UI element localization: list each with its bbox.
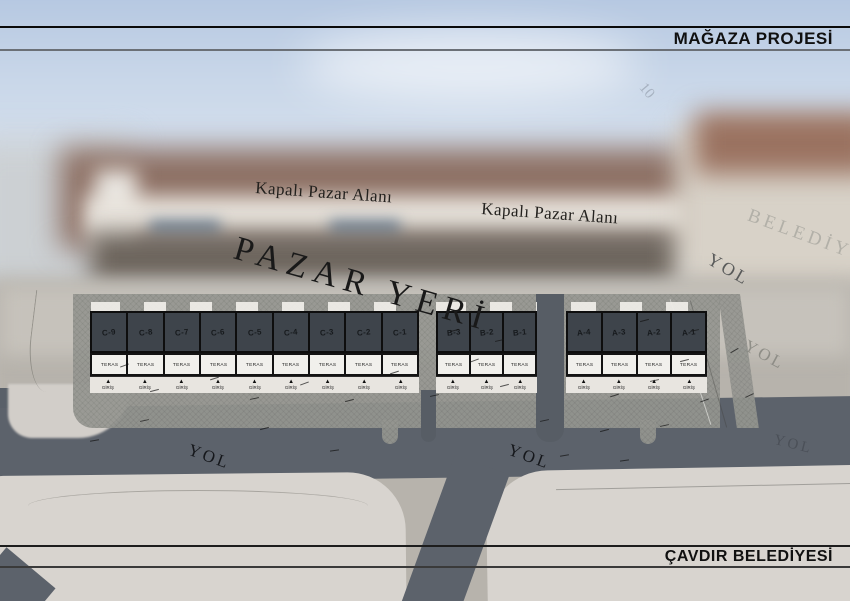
entrance-cell: ▲GİRİŞ bbox=[163, 377, 200, 393]
entrance-cell: ▲GİRİŞ bbox=[383, 377, 420, 393]
entrance-cell: ▲GİRİŞ bbox=[470, 377, 504, 393]
shop-unit-c-7: C-7 bbox=[163, 311, 201, 353]
terrace-cell: TERAS bbox=[126, 353, 164, 376]
title-rule-top bbox=[0, 26, 850, 28]
entrance-arrow-icon: ▲ bbox=[450, 379, 456, 385]
terrace-label: TERAS bbox=[282, 362, 300, 367]
entrance-arrow-icon: ▲ bbox=[252, 379, 258, 385]
terrace-row: TERASTERASTERAS bbox=[436, 353, 537, 376]
terrace-label: TERAS bbox=[445, 362, 463, 367]
entrance-strip: ▲GİRİŞ▲GİRİŞ▲GİRİŞ▲GİRİŞ bbox=[566, 376, 707, 393]
shop-unit-c-9: C-9 bbox=[90, 311, 128, 353]
terrace-cell: TERAS bbox=[235, 353, 273, 376]
shop-unit-label: C-5 bbox=[247, 327, 262, 337]
municipality-title: ÇAVDIR BELEDİYESİ bbox=[665, 548, 833, 566]
walkway-connector bbox=[421, 390, 436, 442]
terrace-cell: TERAS bbox=[436, 353, 471, 376]
entrance-label: GİRİŞ bbox=[285, 385, 297, 389]
entrance-arrow-icon: ▲ bbox=[105, 379, 111, 385]
entrance-label: GİRİŞ bbox=[212, 385, 224, 389]
roof-tabs bbox=[566, 302, 707, 311]
shop-unit-a-3: A-3 bbox=[601, 311, 638, 353]
terrace-cell: TERAS bbox=[601, 353, 638, 376]
shop-unit-c-8: C-8 bbox=[126, 311, 164, 353]
terrace-cell: TERAS bbox=[163, 353, 201, 376]
entrance-label: GİRİŞ bbox=[648, 385, 660, 389]
terrace-label: TERAS bbox=[576, 362, 594, 367]
entrance-cell: ▲GİRİŞ bbox=[601, 377, 636, 393]
shop-unit-label: C-6 bbox=[211, 327, 226, 337]
terrace-cell: TERAS bbox=[308, 353, 346, 376]
terrace-label: TERAS bbox=[173, 362, 191, 367]
entrance-label: GİRİŞ bbox=[514, 385, 526, 389]
terrace-cell: TERAS bbox=[344, 353, 382, 376]
entrance-strip: ▲GİRİŞ▲GİRİŞ▲GİRİŞ▲GİRİŞ▲GİRİŞ▲GİRİŞ▲GİR… bbox=[90, 376, 419, 393]
entrance-label: GİRİŞ bbox=[249, 385, 261, 389]
terrace-cell: TERAS bbox=[272, 353, 310, 376]
shop-unit-c-4: C-4 bbox=[272, 311, 310, 353]
terrace-cell: TERAS bbox=[670, 353, 707, 376]
site-plan-sheet: C-9C-8C-7C-6C-5C-4C-3C-2C-1 TERASTERASTE… bbox=[0, 0, 850, 601]
entrance-arrow-icon: ▲ bbox=[215, 379, 221, 385]
title-rule-bottom-2 bbox=[0, 566, 850, 568]
entrance-label: GİRİŞ bbox=[481, 385, 493, 389]
entrance-label: GİRİŞ bbox=[139, 385, 151, 389]
entrance-cell: ▲GİRİŞ bbox=[346, 377, 383, 393]
entrance-arrow-icon: ▲ bbox=[484, 379, 490, 385]
terrace-label: TERAS bbox=[318, 362, 336, 367]
entrance-cell: ▲GİRİŞ bbox=[200, 377, 237, 393]
entrance-arrow-icon: ▲ bbox=[178, 379, 184, 385]
shop-unit-c-2: C-2 bbox=[344, 311, 382, 353]
entrance-label: GİRİŞ bbox=[578, 385, 590, 389]
entrance-cell: ▲GİRİŞ bbox=[566, 377, 601, 393]
entrance-label: GİRİŞ bbox=[358, 385, 370, 389]
terrace-label: TERAS bbox=[355, 362, 373, 367]
shop-unit-label: C-1 bbox=[392, 327, 407, 337]
entrance-cell: ▲GİRİŞ bbox=[273, 377, 310, 393]
shop-unit-label: A-4 bbox=[577, 327, 592, 337]
shop-unit-a-1: A-1 bbox=[670, 311, 707, 353]
shop-block-c: C-9C-8C-7C-6C-5C-4C-3C-2C-1 TERASTERASTE… bbox=[90, 302, 419, 393]
terrace-row: TERASTERASTERASTERAS bbox=[566, 353, 707, 376]
entrance-cell: ▲GİRİŞ bbox=[127, 377, 164, 393]
entrance-cell: ▲GİRİŞ bbox=[236, 377, 273, 393]
shop-unit-label: A-2 bbox=[647, 327, 662, 337]
entrance-label: GİRİŞ bbox=[322, 385, 334, 389]
terrace-label: TERAS bbox=[209, 362, 227, 367]
entrance-cell: ▲GİRİŞ bbox=[90, 377, 127, 393]
entrance-arrow-icon: ▲ bbox=[325, 379, 331, 385]
entrance-arrow-icon: ▲ bbox=[686, 379, 692, 385]
unit-row: C-9C-8C-7C-6C-5C-4C-3C-2C-1 bbox=[90, 311, 419, 353]
entrance-cell: ▲GİRİŞ bbox=[309, 377, 346, 393]
terrace-label: TERAS bbox=[100, 362, 118, 367]
entrance-label: GİRİŞ bbox=[395, 385, 407, 389]
terrace-cell: TERAS bbox=[502, 353, 537, 376]
project-title: MAĞAZA PROJESİ bbox=[674, 29, 833, 49]
entrance-label: GİRİŞ bbox=[613, 385, 625, 389]
plaza-stub bbox=[382, 420, 398, 444]
terrace-row: TERASTERASTERASTERASTERASTERASTERASTERAS… bbox=[90, 353, 419, 376]
entrance-arrow-icon: ▲ bbox=[398, 379, 404, 385]
shop-unit-label: A-1 bbox=[681, 327, 696, 337]
entrance-arrow-icon: ▲ bbox=[581, 379, 587, 385]
entrance-strip: ▲GİRİŞ▲GİRİŞ▲GİRİŞ bbox=[436, 376, 537, 393]
entrance-label: GİRİŞ bbox=[175, 385, 187, 389]
entrance-cell: ▲GİRİŞ bbox=[436, 377, 470, 393]
terrace-cell: TERAS bbox=[566, 353, 603, 376]
terrace-label: TERAS bbox=[391, 362, 409, 367]
shop-unit-a-4: A-4 bbox=[566, 311, 603, 353]
entrance-arrow-icon: ▲ bbox=[361, 379, 367, 385]
terrace-label: TERAS bbox=[511, 362, 529, 367]
terrace-label: TERAS bbox=[680, 362, 698, 367]
cloud-photo bbox=[300, 30, 640, 100]
brick-right-photo bbox=[695, 112, 850, 174]
terrace-label: TERAS bbox=[246, 362, 264, 367]
entrance-arrow-icon: ▲ bbox=[142, 379, 148, 385]
shop-unit-label: C-9 bbox=[102, 327, 117, 337]
shop-unit-c-3: C-3 bbox=[308, 311, 346, 353]
entrance-cell: ▲GİRİŞ bbox=[672, 377, 707, 393]
shop-unit-b-1: B-1 bbox=[502, 311, 537, 353]
plaza-stub bbox=[640, 420, 656, 444]
title-rule-top-2 bbox=[0, 49, 850, 51]
terrace-cell: TERAS bbox=[381, 353, 419, 376]
title-rule-bottom bbox=[0, 545, 850, 547]
terrace-label: TERAS bbox=[137, 362, 155, 367]
shop-unit-c-5: C-5 bbox=[235, 311, 273, 353]
shop-unit-label: B-1 bbox=[512, 327, 527, 337]
entrance-label: GİRİŞ bbox=[683, 385, 695, 389]
terrace-cell: TERAS bbox=[199, 353, 237, 376]
shop-unit-label: C-7 bbox=[174, 327, 189, 337]
shop-unit-label: C-4 bbox=[283, 327, 298, 337]
terrace-label: TERAS bbox=[645, 362, 663, 367]
pavement-line bbox=[28, 490, 368, 532]
unit-row: A-4A-3A-2A-1 bbox=[566, 311, 707, 353]
entrance-arrow-icon: ▲ bbox=[288, 379, 294, 385]
entrance-label: GİRİŞ bbox=[102, 385, 114, 389]
terrace-cell: TERAS bbox=[469, 353, 504, 376]
terrace-cell: TERAS bbox=[636, 353, 673, 376]
shop-unit-label: A-3 bbox=[612, 327, 627, 337]
entrance-arrow-icon: ▲ bbox=[616, 379, 622, 385]
entrance-label: GİRİŞ bbox=[447, 385, 459, 389]
shop-block-a: A-4A-3A-2A-1 TERASTERASTERASTERAS ▲GİRİŞ… bbox=[566, 302, 707, 393]
terrace-label: TERAS bbox=[610, 362, 628, 367]
entrance-arrow-icon: ▲ bbox=[517, 379, 523, 385]
shop-unit-c-6: C-6 bbox=[199, 311, 237, 353]
shop-unit-a-2: A-2 bbox=[636, 311, 673, 353]
shop-unit-label: C-3 bbox=[320, 327, 335, 337]
shop-unit-label: C-2 bbox=[356, 327, 371, 337]
shop-unit-label: C-8 bbox=[138, 327, 153, 337]
terrace-label: TERAS bbox=[478, 362, 496, 367]
